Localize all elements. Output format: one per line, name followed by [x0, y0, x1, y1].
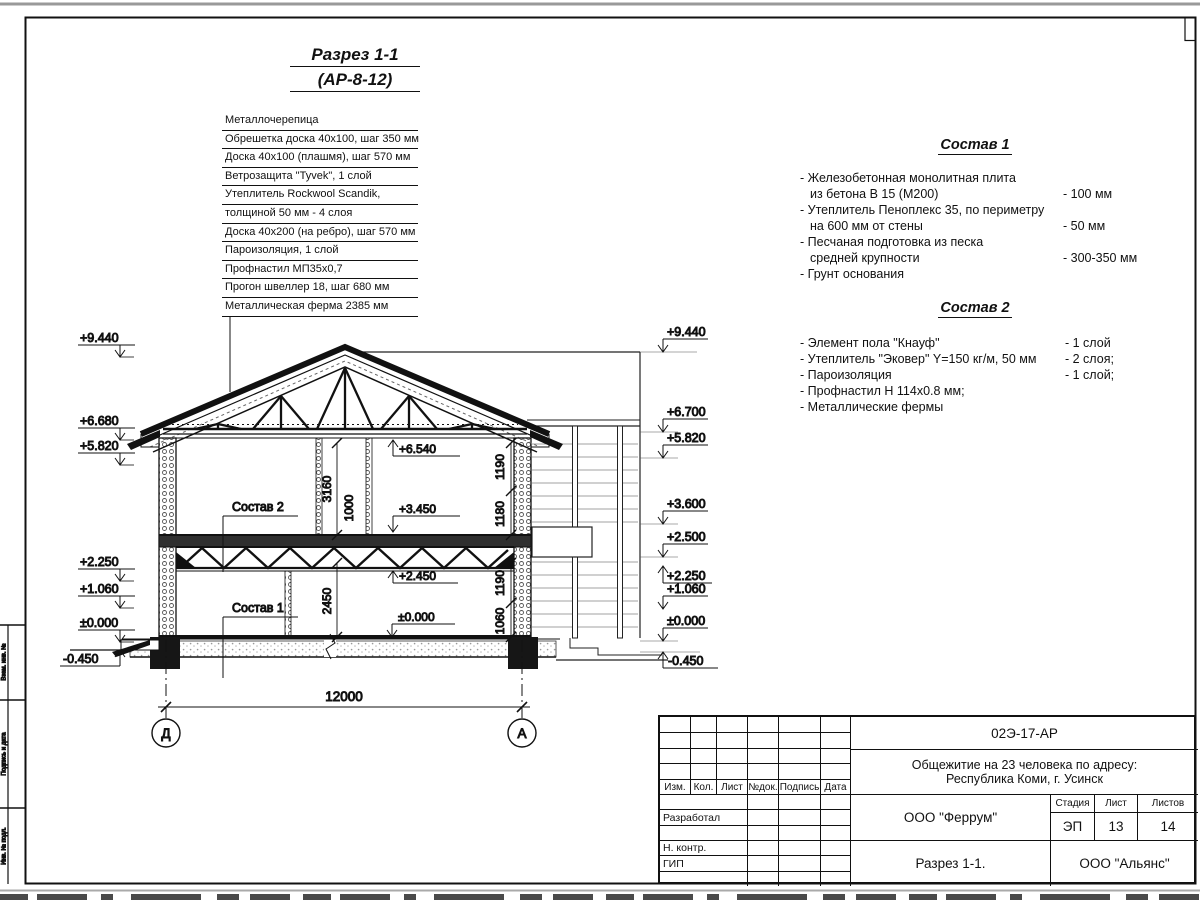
tb-row-nkontr: Н. контр.: [660, 840, 747, 855]
sostav2-line: - Металлические фермы: [800, 399, 943, 415]
section-title-line2: (АР-8-12): [290, 70, 420, 92]
sostav2-value: - 1 слой: [1065, 335, 1111, 351]
sostav2-line: - Пароизоляция: [800, 367, 892, 383]
sostav1-value: - 50 мм: [1063, 218, 1105, 234]
sostav1-line: средней крупности: [810, 250, 920, 266]
tb-designer-org: ООО "Феррум": [850, 794, 1050, 840]
svg-text:±0.000: ±0.000: [398, 610, 435, 624]
roof-truss-webs: [195, 368, 495, 429]
section-title: Разрез 1-1 (АР-8-12): [290, 45, 420, 95]
svg-text:+2.250: +2.250: [667, 569, 706, 583]
roof-layer-row: Утеплитель Rockwool Scandik,: [222, 186, 418, 205]
margin-cell-label: Подпись и дата: [2, 732, 8, 776]
dim-1180: 1180: [493, 501, 507, 527]
roof-layers-callout: Металлочерепица Обрешетка доска 40х100, …: [222, 112, 418, 317]
sostav1-line: из бетона В 15 (М200): [810, 186, 938, 202]
sostav2-note: Состав 2 - Элемент пола "Кнауф" - Утепли…: [800, 300, 1150, 420]
dim-span: 12000: [325, 689, 363, 704]
left-margin-strip: Взам. инв. № Подпись и дата Инв. № подл.: [0, 625, 26, 884]
roof-layer-row: Обрешетка доска 40х100, шаг 350 мм: [222, 131, 418, 150]
tb-sheets-value: 14: [1137, 812, 1198, 840]
elev-right-3600: +3.600: [667, 497, 706, 511]
tb-col-podpis: Подпись: [778, 779, 820, 794]
elev-left-9440: +9.440: [80, 331, 119, 345]
elevation-mark-floor1: ±0.000: [387, 610, 455, 637]
sostav1-line: - Грунт основания: [800, 266, 904, 282]
margin-cell-label: Взам. инв. №: [1, 643, 8, 680]
elev-right-2500: +2.500: [667, 530, 706, 544]
tb-col-data: Дата: [820, 779, 850, 794]
elevation-mark-floor2: +3.450: [388, 502, 460, 532]
sostav1-line: - Железобетонная монолитная плита: [800, 170, 1016, 186]
annex-window: [532, 527, 592, 557]
tb-contractor-org: ООО "Альянс": [1050, 840, 1198, 886]
roof-layer-row: Доска 40х100 (плашмя), шаг 570 мм: [222, 149, 418, 168]
corner-format-box: [1185, 18, 1196, 41]
elev-left-6680: +6.680: [80, 414, 119, 428]
ground-slab: [70, 634, 560, 669]
partition: [366, 438, 372, 535]
elev-right-1060: +1.060: [667, 582, 706, 596]
sostav2-line: - Утеплитель "Эковер" Y=150 кг/м, 50 мм: [800, 351, 1036, 367]
svg-text:Состав 1: Состав 1: [232, 601, 284, 615]
svg-text:+3.450: +3.450: [399, 502, 436, 516]
roof-layer-row: Пароизоляция, 1 слой: [222, 242, 418, 261]
sostav1-value: - 100 мм: [1063, 186, 1112, 202]
elev-left-0000: ±0.000: [80, 616, 118, 630]
margin-cell-label: Инв. № подл.: [1, 827, 8, 865]
roof-layer-row: толщиной 50 мм - 4 слоя: [222, 205, 418, 224]
axis-letter-left: Д: [161, 726, 170, 741]
roof-layer-row: Прогон швеллер 18, шаг 680 мм: [222, 279, 418, 298]
tb-project-line2: Республика Коми, г. Усинск: [946, 772, 1103, 786]
dim-corridor: 1000: [342, 494, 356, 521]
svg-text:Состав 2: Состав 2: [232, 500, 284, 514]
sostav2-value: - 1 слой;: [1065, 367, 1114, 383]
svg-text:+2.450: +2.450: [399, 569, 436, 583]
section-title-line1: Разрез 1-1: [290, 45, 420, 67]
elevation-mark-ceiling2: +6.540: [388, 440, 460, 456]
roof-layer-row: Металлическая ферма 2385 мм: [222, 298, 418, 317]
tb-stage-value: ЭП: [1050, 812, 1094, 840]
building-section: [70, 347, 563, 669]
tb-stage-label: Стадия: [1050, 794, 1094, 812]
tb-doc-number: 02Э-17-АР: [850, 717, 1198, 749]
tb-row-razrabotal: Разработал: [660, 809, 747, 825]
roof-layer-row: Ветрозащита "Tyvek", 1 слой: [222, 168, 418, 187]
tb-sheet-value: 13: [1094, 812, 1137, 840]
tb-sheet-title: Разрез 1-1.: [850, 840, 1050, 886]
elev-right-6700: +6.700: [667, 405, 706, 419]
intermediate-floor: [159, 535, 531, 571]
elev-right-0000: ±0.000: [667, 614, 705, 628]
title-block: Изм. Кол. Лист №док. Подпись Дата Разраб…: [658, 715, 1196, 884]
right-elevation-marks: +9.440 +6.700 +5.820 +3.600 +2.500 +2.25…: [640, 325, 718, 668]
svg-text:+6.540: +6.540: [399, 442, 436, 456]
roof-layer-top: Металлочерепица: [222, 112, 418, 131]
sostav1-note: Состав 1 - Железобетонная монолитная пли…: [800, 137, 1150, 287]
partition: [285, 571, 291, 637]
sostav2-value: - 2 слоя;: [1065, 351, 1114, 367]
elev-right-5820: +5.820: [667, 431, 706, 445]
tb-sheet-label: Лист: [1094, 794, 1137, 812]
sostav1-line: на 600 мм от стены: [810, 218, 923, 234]
dim-room2-height: 3160: [320, 475, 334, 502]
tb-col-kol: Кол.: [690, 779, 716, 794]
tb-col-list: Лист: [716, 779, 747, 794]
roof: [127, 347, 563, 452]
tb-sheets-label: Листов: [1137, 794, 1198, 812]
sostav2-line: - Профнастил Н 114х0.8 мм;: [800, 383, 965, 399]
tb-row-gip: ГИП: [660, 855, 747, 871]
dim-1190-lower: 1190: [493, 570, 507, 596]
elev-left-1060: +1.060: [80, 582, 119, 596]
elev-left-2250: +2.250: [80, 555, 119, 569]
dim-room1-height: 2450: [320, 587, 334, 614]
sostav1-title: Состав 1: [800, 137, 1150, 153]
sostav1-line: - Песчаная подготовка из песка: [800, 234, 983, 250]
elev-right-2250: +2.250: [658, 566, 712, 583]
dim-1060: 1060: [493, 607, 507, 634]
sostav2-title: Состав 2: [800, 300, 1150, 316]
roof-layer-row: Профнастил МП35х0,7: [222, 261, 418, 280]
tb-project-name: Общежитие на 23 человека по адресу: Респ…: [850, 749, 1198, 794]
tb-project-line1: Общежитие на 23 человека по адресу:: [912, 758, 1137, 772]
tb-col-ndok: №док.: [747, 779, 778, 794]
dim-1190-upper: 1190: [493, 454, 507, 480]
right-foundation: [508, 637, 538, 669]
axis-letter-right: А: [517, 726, 526, 741]
elev-right-9440: +9.440: [667, 325, 706, 339]
svg-text:-0.450: -0.450: [63, 652, 98, 666]
sostav1-line: - Утеплитель Пеноплекс 35, по периметру: [800, 202, 1044, 218]
svg-text:-0.450: -0.450: [668, 654, 703, 668]
elev-left-5820: +5.820: [80, 439, 119, 453]
roof-layer-row: Доска 40х200 (на ребро), шаг 570 мм: [222, 224, 418, 243]
sostav1-value: - 300-350 мм: [1063, 250, 1137, 266]
left-elevation-marks: +9.440 +6.680 +5.820 +2.250 +1.060 ±0.00…: [60, 331, 135, 666]
tb-col-izm: Изм.: [660, 779, 690, 794]
drawing-sheet: Взам. инв. № Подпись и дата Инв. № подл.: [0, 0, 1200, 900]
sostav2-line: - Элемент пола "Кнауф": [800, 335, 940, 351]
